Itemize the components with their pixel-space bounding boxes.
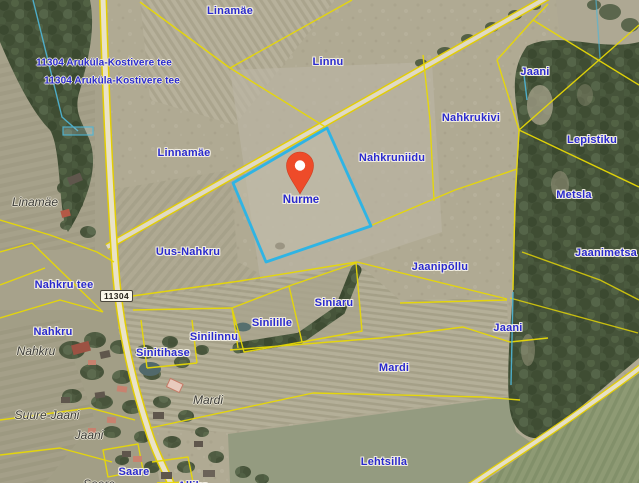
pin-hole — [295, 160, 305, 170]
pin-body — [287, 152, 314, 194]
map-canvas[interactable]: LinamäeLinnuJaaniNahkrukiviLepistikuLinn… — [0, 0, 639, 483]
aerial-imagery — [0, 0, 639, 483]
road-shield: 11304 — [100, 290, 133, 302]
